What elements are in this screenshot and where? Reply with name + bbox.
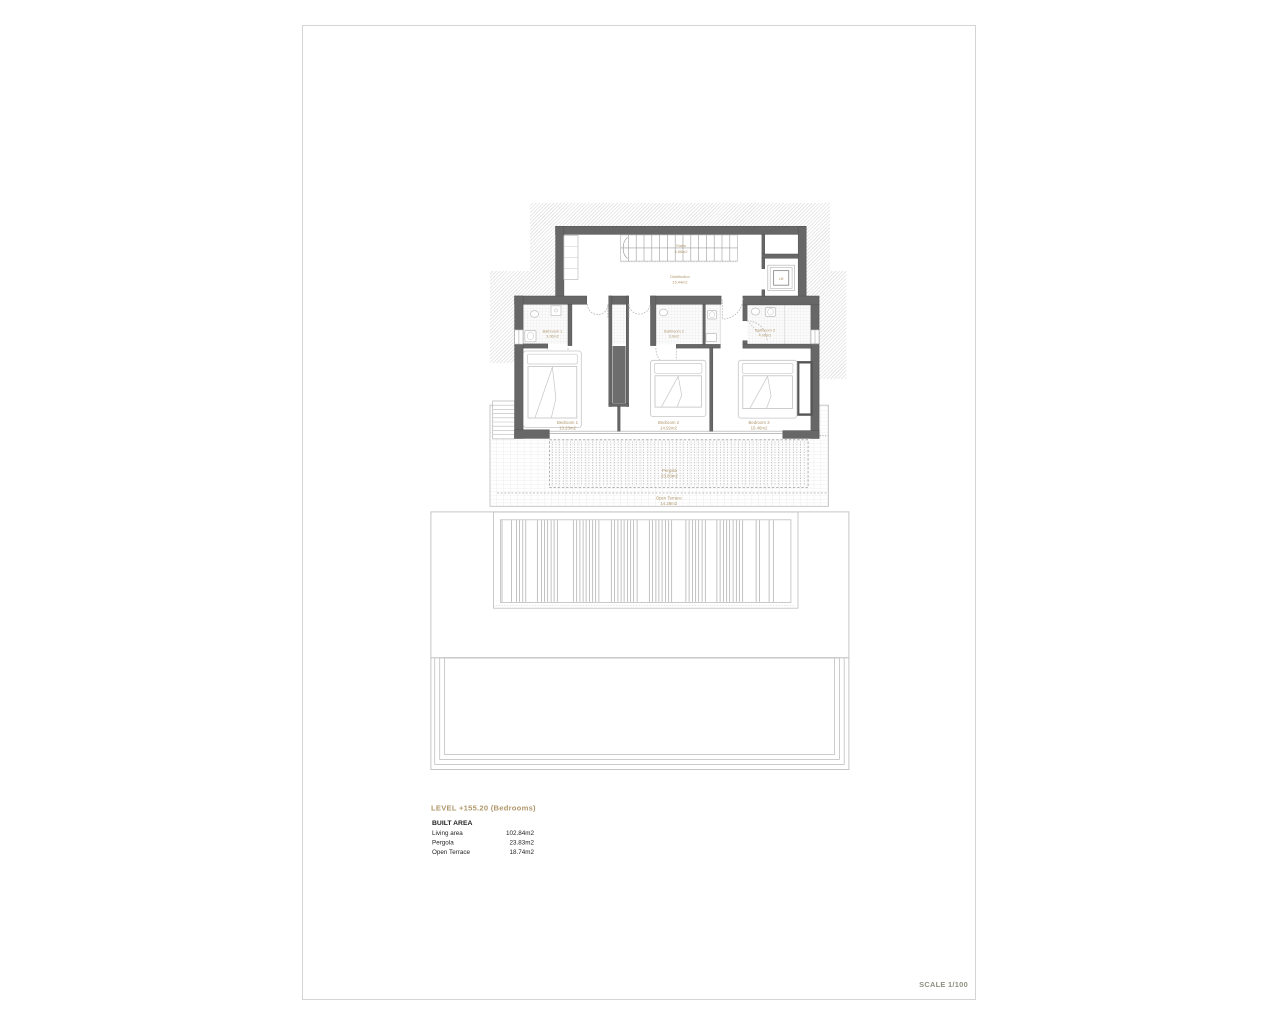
svg-text:23.83m2: 23.83m2 (509, 840, 534, 847)
svg-text:4.00m2: 4.00m2 (759, 333, 772, 337)
svg-text:Bedroom 1: Bedroom 1 (557, 420, 579, 425)
svg-text:Distribution: Distribution (670, 274, 689, 279)
svg-text:13.23m2: 13.23m2 (559, 426, 576, 431)
svg-text:18.74m2: 18.74m2 (509, 849, 534, 856)
svg-text:102.84m2: 102.84m2 (506, 830, 535, 837)
svg-text:Bathroom 2: Bathroom 2 (664, 330, 684, 334)
svg-text:SCALE 1/100: SCALE 1/100 (919, 980, 968, 989)
svg-text:BUILT AREA: BUILT AREA (432, 820, 472, 827)
svg-text:23.83m2: 23.83m2 (661, 474, 678, 479)
svg-text:14.28m2: 14.28m2 (660, 501, 677, 506)
svg-text:LEVEL +155.20 (Bedrooms): LEVEL +155.20 (Bedrooms) (431, 804, 536, 813)
svg-text:Open Terrace: Open Terrace (656, 496, 683, 501)
svg-text:Bathroom 3: Bathroom 3 (755, 328, 775, 332)
svg-text:Pergola: Pergola (432, 840, 454, 847)
svg-text:Lift: Lift (779, 277, 784, 281)
svg-text:Bedroom 3: Bedroom 3 (748, 420, 770, 425)
svg-text:Pergola: Pergola (662, 468, 677, 473)
svg-text:3.9m2: 3.9m2 (669, 335, 680, 339)
svg-text:Bathroom 1: Bathroom 1 (543, 330, 563, 334)
svg-text:3.06m2: 3.06m2 (546, 335, 559, 339)
svg-text:14.92m2: 14.92m2 (660, 426, 677, 431)
svg-text:4.86m2: 4.86m2 (675, 249, 688, 254)
svg-text:15.44m2: 15.44m2 (672, 280, 687, 285)
svg-text:Bedroom 2: Bedroom 2 (658, 420, 680, 425)
svg-text:Stairs: Stairs (676, 243, 686, 248)
svg-text:Living area: Living area (432, 830, 463, 837)
svg-text:Open Terrace: Open Terrace (432, 849, 471, 856)
svg-text:15.46m2: 15.46m2 (751, 426, 768, 431)
